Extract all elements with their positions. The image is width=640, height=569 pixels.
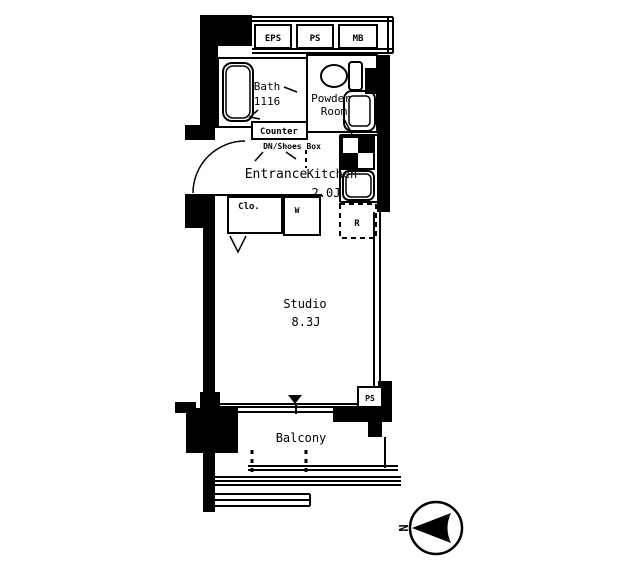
wall-bottom-right-column <box>368 422 382 437</box>
wall-entry-jog <box>185 125 215 140</box>
entrance-door-arc <box>193 141 245 193</box>
washer-label: W <box>295 206 300 215</box>
bath-size-leader <box>250 110 260 119</box>
shoes-leader-1 <box>255 152 263 161</box>
eps-label: EPS <box>265 34 281 44</box>
counter-label: Counter <box>260 127 299 137</box>
floor-plan: EPS PS MB Bath 1116 Powder Room Counter … <box>0 0 640 569</box>
wall-studio-left <box>203 228 215 405</box>
studio-label: Studio <box>283 297 326 311</box>
closet-door-mark <box>230 236 246 252</box>
washer-box <box>284 197 320 235</box>
compass-needle-icon <box>412 513 451 543</box>
toilet-tank <box>349 62 362 90</box>
entrance-label: Entrance <box>245 167 308 182</box>
wall-bottom-left-bar <box>203 453 215 512</box>
stove-burner-1 <box>358 137 374 153</box>
powder-room-label-1: Powder <box>311 92 351 105</box>
ps-bottom-label: PS <box>365 394 375 403</box>
wall-entry-column <box>185 194 215 228</box>
balcony-label: Balcony <box>276 431 327 445</box>
kitchen-label: Kitchen <box>307 167 358 181</box>
wall-balcony-divider <box>186 408 238 453</box>
wall-balcony-arm <box>175 402 196 413</box>
bath-size-label: 1116 <box>254 95 281 108</box>
toilet-icon <box>321 65 347 87</box>
bathtub-icon <box>223 63 253 121</box>
mb-label: MB <box>353 34 364 44</box>
floor-plan-page: EPS PS MB Bath 1116 Powder Room Counter … <box>0 0 640 569</box>
bathtub-inner <box>226 66 250 118</box>
studio-size-label: 8.3J <box>292 315 321 329</box>
kitchen-size-label: 2.0J <box>312 186 341 200</box>
bath-leader <box>284 87 297 92</box>
washbasin-inner <box>349 96 370 126</box>
window-marker-icon <box>288 395 302 404</box>
bath-label: Bath <box>254 80 281 93</box>
shoes-box-label: DN/Shoes Box <box>263 142 321 151</box>
powder-room-label-2: Room <box>321 105 348 118</box>
label-boxes <box>228 25 382 407</box>
compass: N <box>396 502 462 554</box>
ps-top-label: PS <box>310 34 321 44</box>
wall-bottom-right-band <box>333 407 392 422</box>
shoes-leader-2 <box>286 152 296 159</box>
closet-label: Clo. <box>238 202 260 212</box>
compass-north-label: N <box>396 524 410 531</box>
wall-bath-left <box>200 45 218 128</box>
refrigerator-label: R <box>354 219 360 229</box>
wall-right-band <box>377 55 390 212</box>
wall-top-left-block <box>200 15 252 46</box>
